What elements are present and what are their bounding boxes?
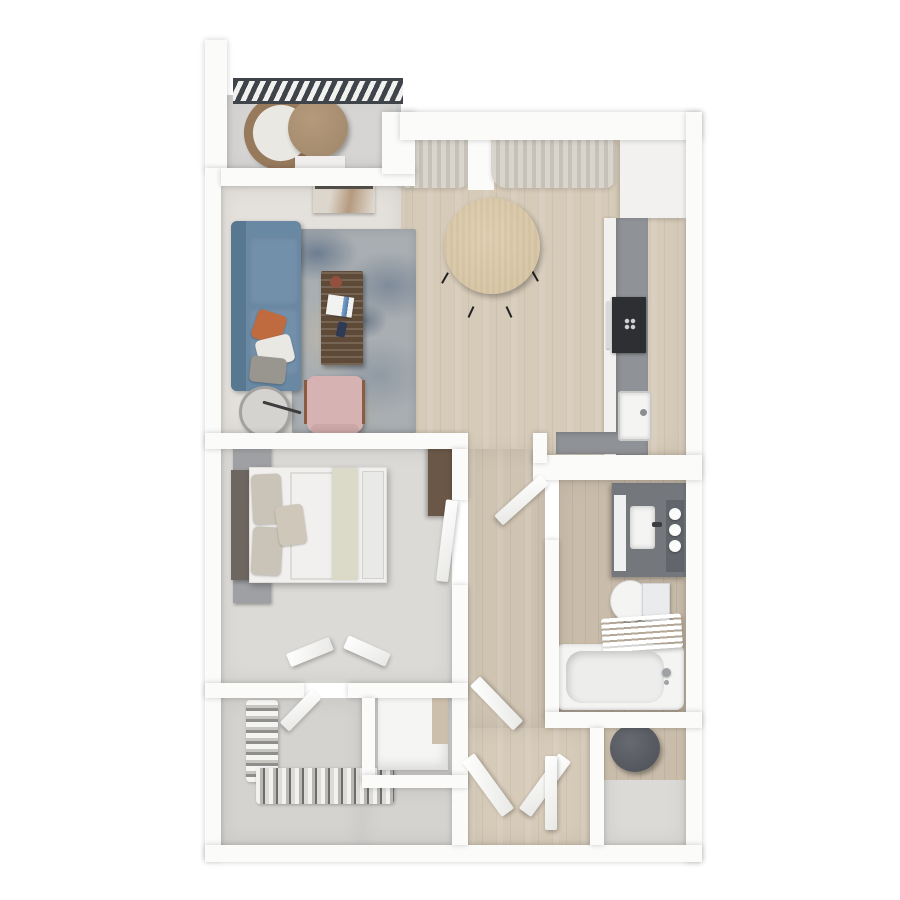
kitchen-sink: [618, 391, 652, 441]
throw-pillow-gray: [249, 355, 288, 385]
wall-bedroom-top: [205, 433, 468, 449]
curtain-right: [491, 136, 615, 188]
wall-right-main: [686, 112, 702, 862]
cooktop-burner-dots: [624, 318, 636, 330]
rolled-towel-2: [669, 524, 681, 536]
armchair-frame-right: [362, 380, 365, 424]
wall-bathroom-bottom: [545, 712, 702, 728]
bed-headboard: [231, 470, 251, 580]
wall-kitchen-bottom: [533, 455, 702, 480]
armchair-frame-left: [304, 380, 307, 424]
dining-table: [444, 198, 540, 294]
coffee-table: [321, 271, 363, 365]
bed-footboard: [362, 471, 384, 579]
wall-bedroom-bottom-left: [205, 683, 304, 698]
bathroom-sink: [630, 506, 655, 549]
bed-accent-pillow: [274, 503, 307, 547]
wall-hall-right-upper: [533, 433, 547, 463]
tub-faucet: [662, 668, 671, 677]
balcony-railing: [233, 78, 403, 104]
bed-runner: [332, 468, 358, 580]
floorplan-canvas: [0, 0, 900, 900]
utility-hall-door: [545, 756, 557, 830]
wall-bedroom-bottom-right: [348, 683, 468, 698]
side-table: [239, 386, 291, 438]
bathroom-faucet: [652, 522, 662, 527]
kitchen-tall-cabinets: [620, 140, 686, 218]
wall-bedroom-right-upper: [452, 449, 468, 500]
coffee-table-candle: [330, 276, 342, 288]
towel-ladder: [601, 613, 683, 652]
wall-laundry-bottom: [362, 775, 468, 788]
kitchen-faucet: [640, 409, 647, 416]
wall-left-main: [205, 168, 221, 860]
water-heater: [610, 724, 660, 772]
vanity-cabinet-face: [614, 495, 626, 571]
bathtub-basin: [566, 651, 664, 703]
wall-utility-left: [590, 728, 604, 845]
sofa-back: [231, 221, 246, 391]
wall-bathroom-left: [545, 540, 559, 718]
wall-closet-right: [362, 698, 375, 782]
coffee-table-book: [326, 294, 355, 317]
laundry-shelf-wood: [432, 694, 448, 744]
wall-bedroom-right-lower: [452, 585, 468, 845]
wall-window-top: [400, 112, 702, 140]
oven-handle: [606, 301, 610, 349]
rolled-towel-1: [669, 508, 681, 520]
sofa-cushion-top: [249, 237, 299, 305]
rolled-towel-3: [669, 540, 681, 552]
bistro-table: [288, 98, 348, 158]
wall-bottom: [205, 845, 702, 862]
wall-balcony-left: [205, 40, 227, 172]
